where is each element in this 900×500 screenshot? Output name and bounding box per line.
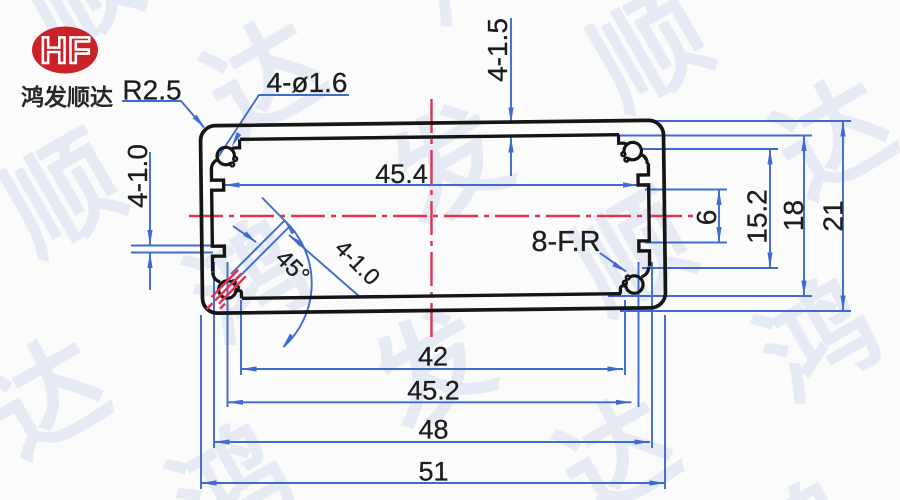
svg-text:42: 42	[418, 342, 448, 372]
svg-text:4-1.0: 4-1.0	[122, 144, 153, 208]
svg-text:4-ø1.6: 4-ø1.6	[267, 67, 348, 98]
svg-text:HF: HF	[40, 30, 91, 71]
svg-text:R2.5: R2.5	[122, 75, 181, 106]
svg-text:45.4: 45.4	[375, 159, 428, 189]
svg-text:15.2: 15.2	[742, 189, 773, 244]
svg-text:鸿发顺达: 鸿发顺达	[21, 84, 113, 110]
svg-text:51: 51	[418, 457, 448, 487]
svg-text:45.2: 45.2	[407, 376, 460, 406]
svg-text:4-1.5: 4-1.5	[482, 18, 513, 82]
svg-text:8-F.R: 8-F.R	[531, 226, 600, 258]
svg-text:6: 6	[691, 210, 722, 226]
svg-text:21: 21	[818, 200, 849, 231]
svg-text:48: 48	[418, 415, 448, 445]
svg-text:18: 18	[778, 200, 809, 231]
